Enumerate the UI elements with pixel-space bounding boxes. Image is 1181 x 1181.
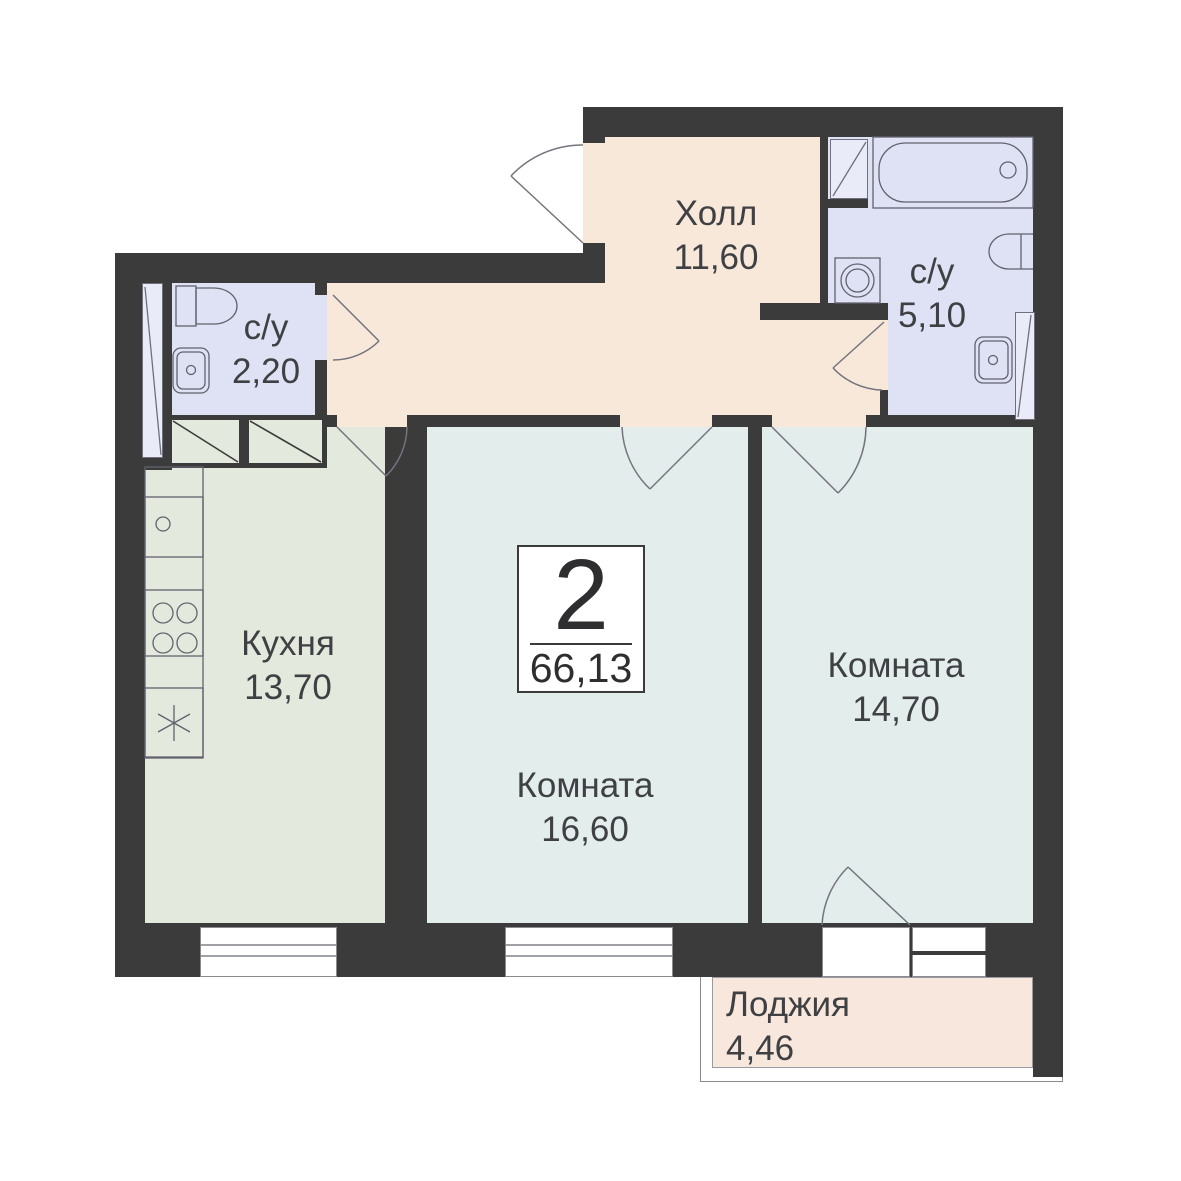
room-name: с/у: [898, 250, 966, 294]
room-name: с/у: [232, 306, 300, 350]
wall-bath-small-right: [315, 360, 327, 415]
floor-plan: Холл 11,60 с/у 2,20 с/у 5,10 Кухня 13,70…: [0, 0, 1181, 1181]
opening-entrance: [583, 143, 605, 243]
wall-entrance-bottom: [583, 240, 605, 283]
room-name: Комната: [827, 644, 964, 688]
opening-bath-small: [315, 295, 327, 360]
badge-total-area: 66,13: [519, 645, 643, 691]
opening-room1: [620, 415, 712, 427]
room-area: 16,60: [516, 808, 653, 852]
room-area: 13,70: [241, 666, 335, 710]
wall-hall-bath-big: [820, 137, 828, 305]
wall-vestibule-stub: [760, 303, 888, 320]
wall-outer-top-left: [115, 253, 605, 283]
ventilation-shaft-right: [1015, 312, 1035, 420]
built-in-closet-1: [167, 415, 244, 468]
wall-outer-left: [115, 253, 145, 977]
opening-room2: [772, 415, 866, 427]
room-label-bath-big: с/у 5,10: [898, 250, 966, 338]
wall-bath-big-bottom: [866, 415, 1033, 427]
balcony-door: [822, 927, 910, 977]
opening-kitchen: [337, 415, 407, 427]
room-area: 11,60: [674, 236, 759, 280]
room-name: Лоджия: [726, 983, 850, 1027]
wall-shaft-top-bottom: [828, 199, 868, 208]
window-room1: [505, 927, 673, 977]
room-label-kitchen: Кухня 13,70: [241, 622, 335, 710]
room-name: Кухня: [241, 622, 335, 666]
room-area: 14,70: [827, 688, 964, 732]
apartment-badge: 2 66,13: [517, 545, 645, 693]
room-area: 5,10: [898, 294, 966, 338]
opening-bath-big: [880, 320, 888, 390]
wall-bath-small-jamb-top: [315, 283, 327, 295]
window-balcony: [912, 927, 986, 977]
built-in-closet-2: [244, 415, 327, 468]
room-name: Комната: [516, 764, 653, 808]
wall-kitchen-room1: [385, 427, 427, 923]
wall-outer-top: [583, 107, 1063, 137]
wall-room-partition: [748, 427, 762, 923]
room-label-bath-small: с/у 2,20: [232, 306, 300, 394]
room-area: 4,46: [726, 1027, 850, 1071]
ventilation-shaft-top: [830, 139, 868, 199]
room-label-room1: Комната 16,60: [516, 764, 653, 852]
wall-bath-big-door-jamb: [880, 390, 888, 417]
room-name: Холл: [674, 192, 759, 236]
door-arc-entrance: [511, 145, 583, 243]
badge-rooms-count: 2: [519, 549, 643, 641]
wall-right-loggia: [1033, 977, 1063, 1077]
ventilation-shaft-left: [142, 283, 163, 458]
room-area: 2,20: [232, 350, 300, 394]
room-label-hall: Холл 11,60: [674, 192, 759, 280]
wall-outer-right: [1033, 107, 1063, 977]
window-kitchen: [200, 927, 337, 977]
room-label-room2: Комната 14,70: [827, 644, 964, 732]
room-label-loggia: Лоджия 4,46: [726, 983, 850, 1071]
